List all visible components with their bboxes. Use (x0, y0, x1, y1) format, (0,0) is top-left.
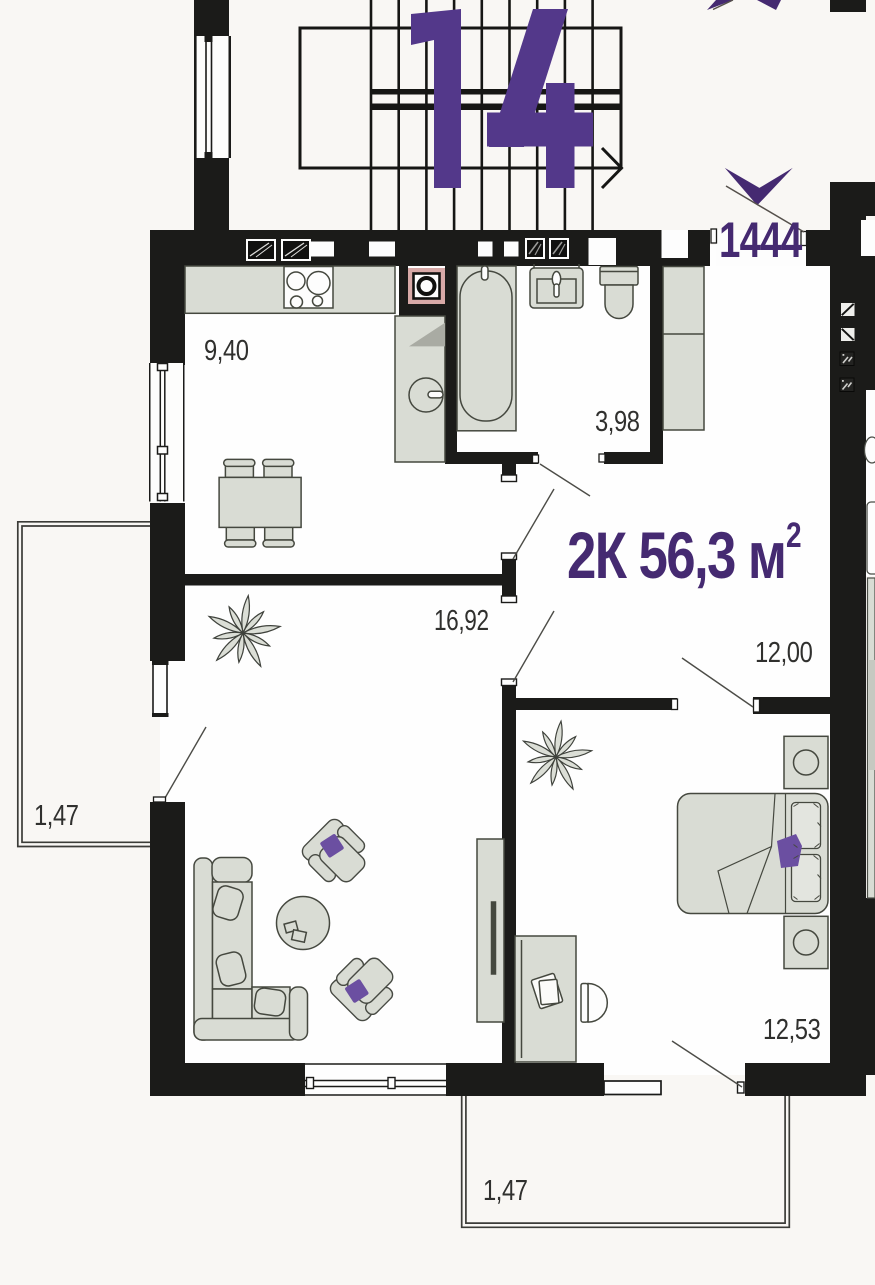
svg-text:1444: 1444 (719, 213, 802, 268)
svg-text:12,00: 12,00 (755, 636, 812, 669)
svg-text:2: 2 (786, 515, 802, 555)
svg-text:12,53: 12,53 (763, 1013, 820, 1046)
svg-text:1,47: 1,47 (34, 799, 79, 832)
svg-text:16,92: 16,92 (434, 603, 489, 636)
svg-text:1,47: 1,47 (483, 1174, 528, 1207)
svg-text:3,98: 3,98 (595, 405, 640, 438)
svg-text:2К 56,3 м: 2К 56,3 м (567, 518, 785, 592)
svg-text:9,40: 9,40 (204, 334, 249, 367)
